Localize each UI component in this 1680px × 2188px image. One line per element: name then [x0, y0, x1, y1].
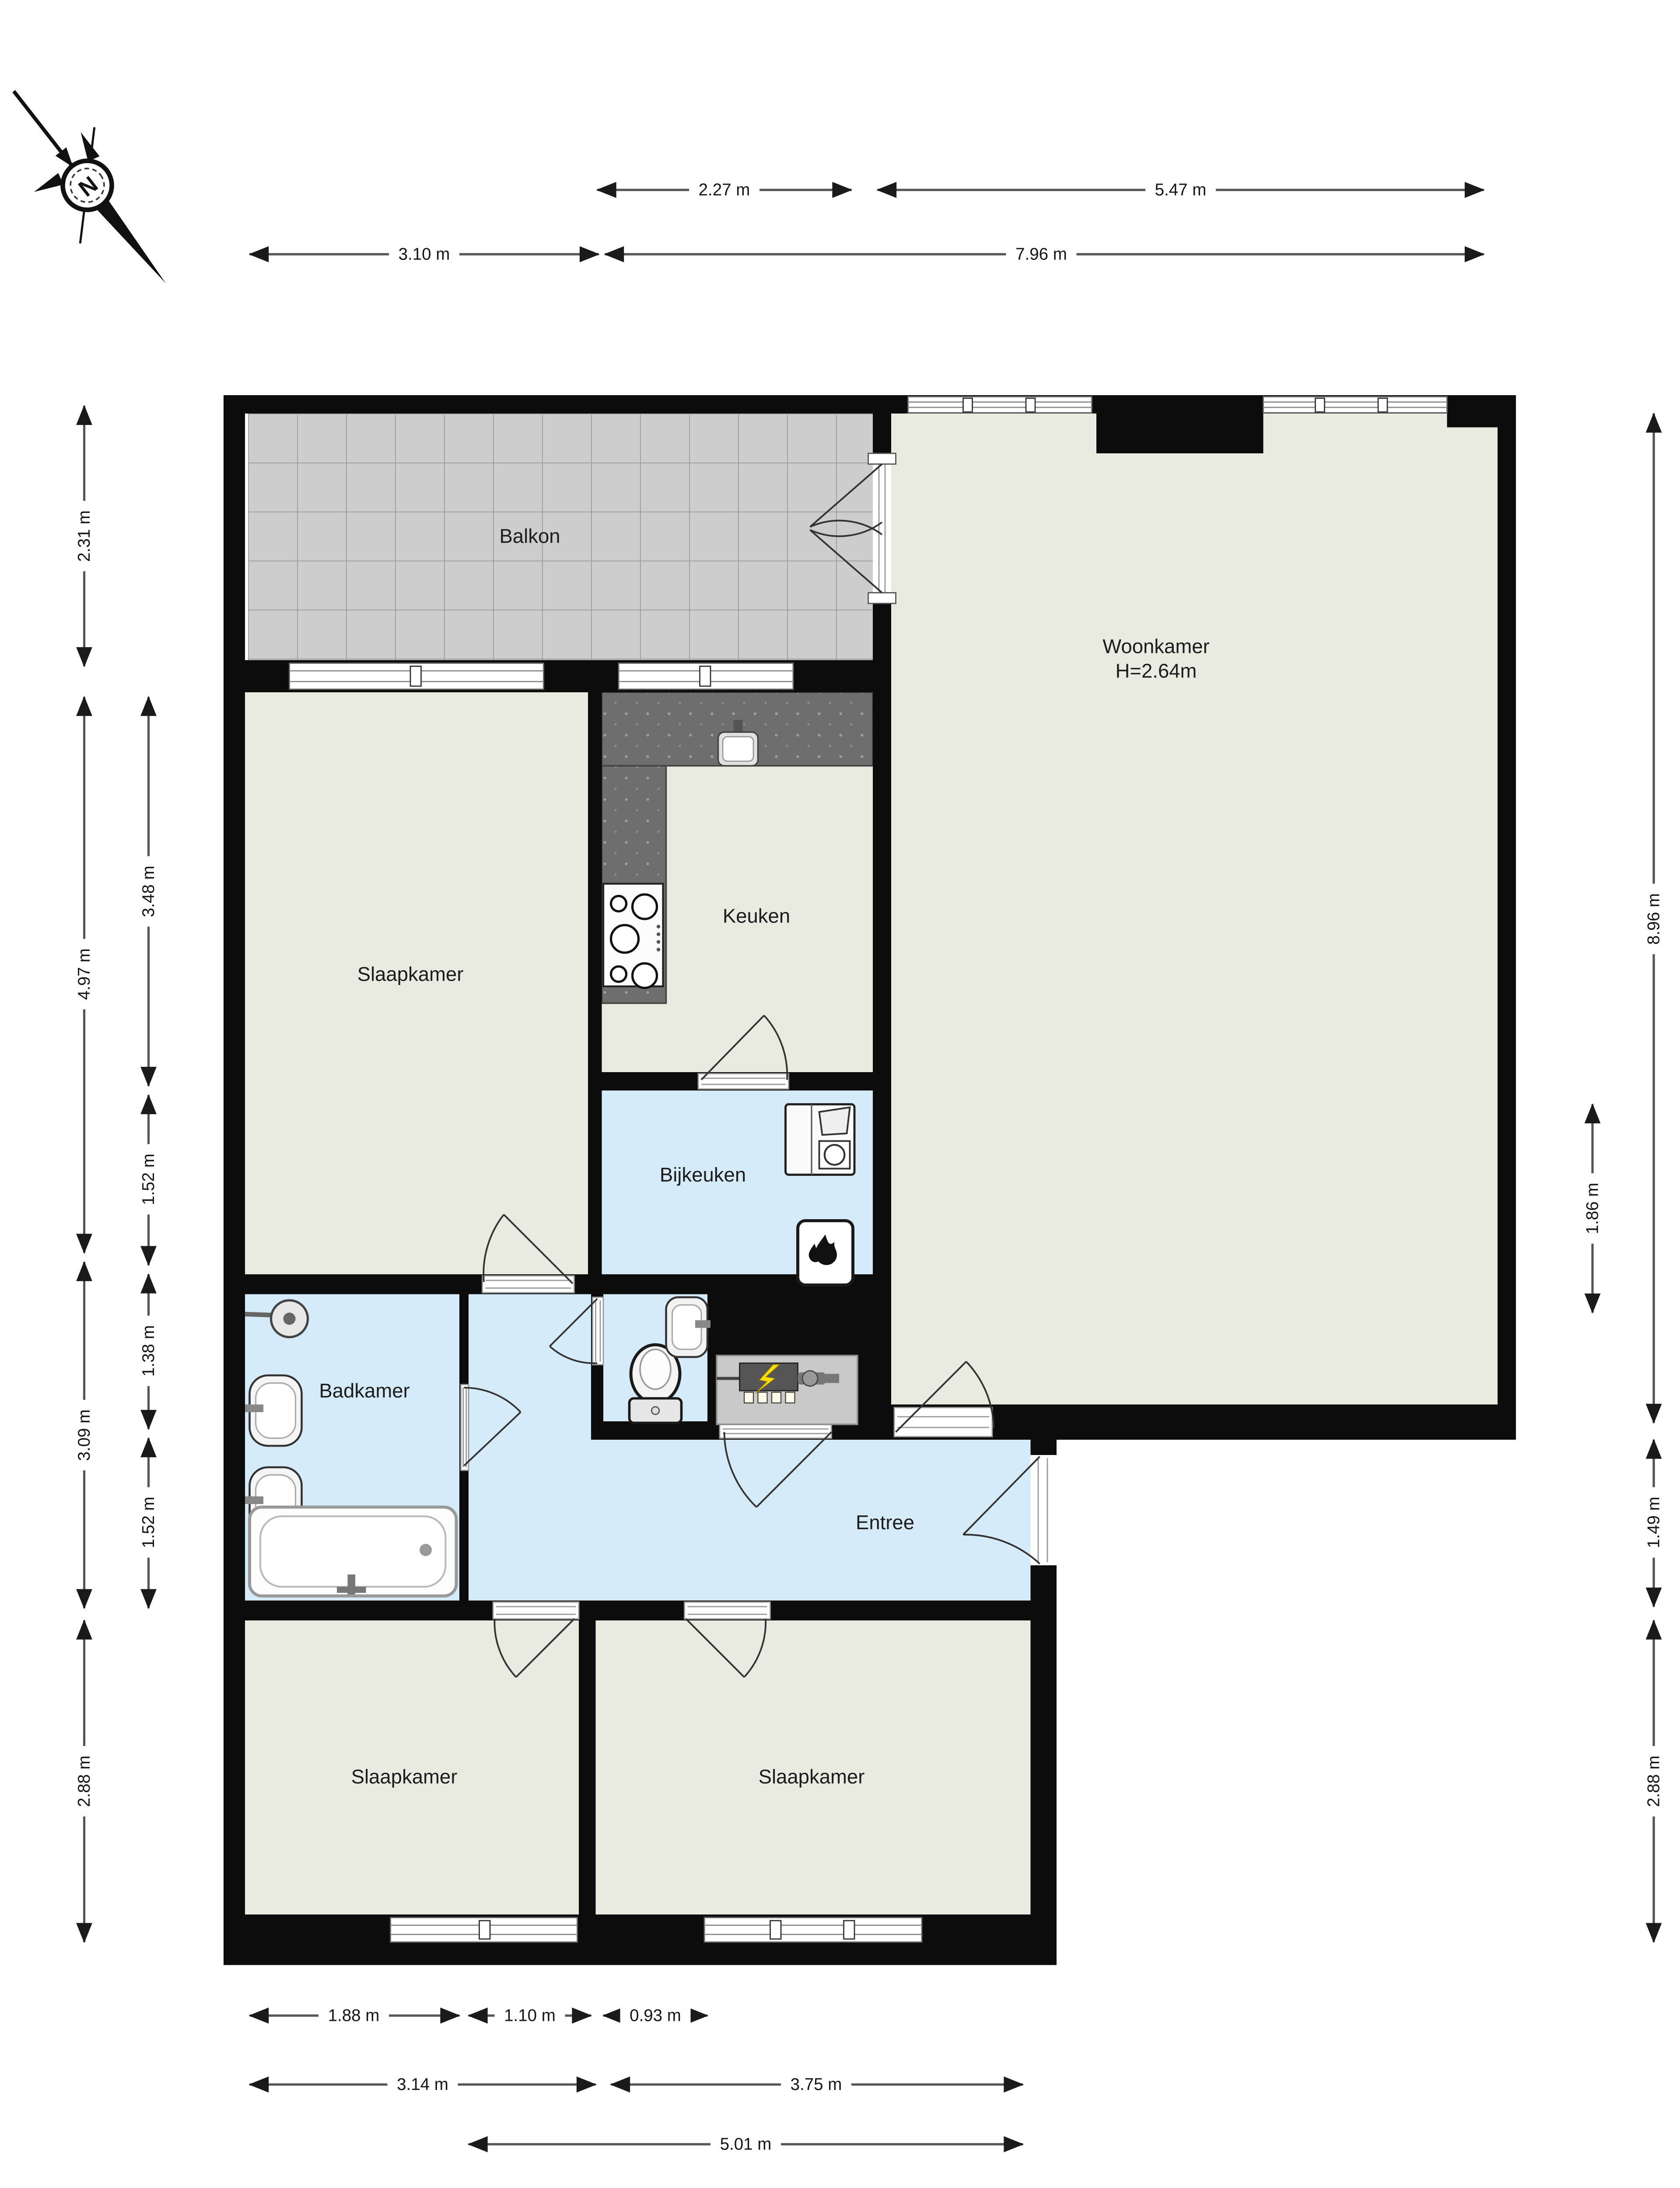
- dim-bottom-5: 3.75 m: [791, 2075, 842, 2094]
- room-label-balkon: Balkon: [499, 525, 560, 547]
- dim-left-7: 1.38 m: [139, 1325, 158, 1377]
- room-label-keuken: Keuken: [723, 905, 790, 927]
- electric-meter-icon: [740, 1363, 798, 1391]
- window-kitchen-balcony: [619, 663, 793, 690]
- dim-top-1: 2.27 m: [699, 181, 750, 200]
- room-label-slaapkamer-linksonder: Slaapkamer: [351, 1766, 458, 1788]
- dim-right-2: 1.86 m: [1583, 1183, 1602, 1234]
- window-bedroom-right: [704, 1918, 922, 1942]
- dim-top-2: 5.47 m: [1155, 181, 1207, 200]
- floorplan-drawing: Balkon Woonkamer H=2.64m Slaapkamer Keuk…: [0, 0, 1680, 2188]
- meter-cabinet: [717, 1356, 857, 1425]
- boiler-flame-icon: [798, 1221, 853, 1285]
- dim-left-6: 1.52 m: [139, 1154, 158, 1205]
- room-label-entree: Entree: [856, 1511, 914, 1534]
- window-bedroomtop-balcony: [290, 663, 544, 690]
- livingroom-floor: [891, 414, 1498, 1405]
- room-label-badkamer: Badkamer: [319, 1380, 409, 1402]
- room-label-slaapkamer-rechtsonder: Slaapkamer: [759, 1766, 865, 1788]
- dim-left-1: 2.31 m: [75, 510, 94, 562]
- compass-icon: N: [0, 66, 197, 312]
- dim-left-5: 3.48 m: [139, 866, 158, 917]
- dim-bottom-2: 1.10 m: [504, 2006, 556, 2025]
- dim-bottom-6: 5.01 m: [720, 2135, 772, 2154]
- floorplan-page: Balkon Woonkamer H=2.64m Slaapkamer Keuk…: [0, 0, 1680, 2188]
- dim-left-8: 1.52 m: [139, 1497, 158, 1548]
- window-bedroom-left: [391, 1918, 577, 1942]
- bathtub-icon: [250, 1507, 457, 1596]
- room-height-note: H=2.64m: [1116, 660, 1197, 682]
- floors: [245, 414, 1498, 1914]
- washbasin-icon: [245, 1375, 302, 1446]
- dim-right-3: 1.49 m: [1645, 1497, 1663, 1548]
- stove-icon: [603, 884, 663, 988]
- room-label-woonkamer: Woonkamer: [1102, 635, 1209, 658]
- hall-corridor-floor: [469, 1294, 591, 1601]
- dim-left-2: 4.97 m: [75, 948, 94, 1000]
- dim-bottom-1: 1.88 m: [328, 2006, 380, 2025]
- dim-top-3: 3.10 m: [399, 245, 450, 264]
- hall-floor: [591, 1440, 1031, 1601]
- window-livingroom-1: [908, 397, 1092, 413]
- balcony-floor: [248, 414, 873, 660]
- room-label-bijkeuken: Bijkeuken: [660, 1164, 746, 1186]
- dim-right-1: 8.96 m: [1645, 893, 1663, 945]
- room-label-slaapkamer-boven: Slaapkamer: [357, 963, 464, 985]
- washing-machine-icon: [786, 1105, 855, 1175]
- dim-bottom-4: 3.14 m: [397, 2075, 448, 2094]
- hand-basin-icon: [666, 1297, 711, 1357]
- front-door-opening: [1031, 1455, 1057, 1565]
- dim-left-3: 3.09 m: [75, 1410, 94, 1461]
- dim-bottom-3: 0.93 m: [630, 2006, 681, 2025]
- window-livingroom-2: [1263, 397, 1447, 413]
- dim-left-4: 2.88 m: [75, 1756, 94, 1807]
- dim-right-4: 2.88 m: [1645, 1756, 1663, 1807]
- dim-top-4: 7.96 m: [1015, 245, 1067, 264]
